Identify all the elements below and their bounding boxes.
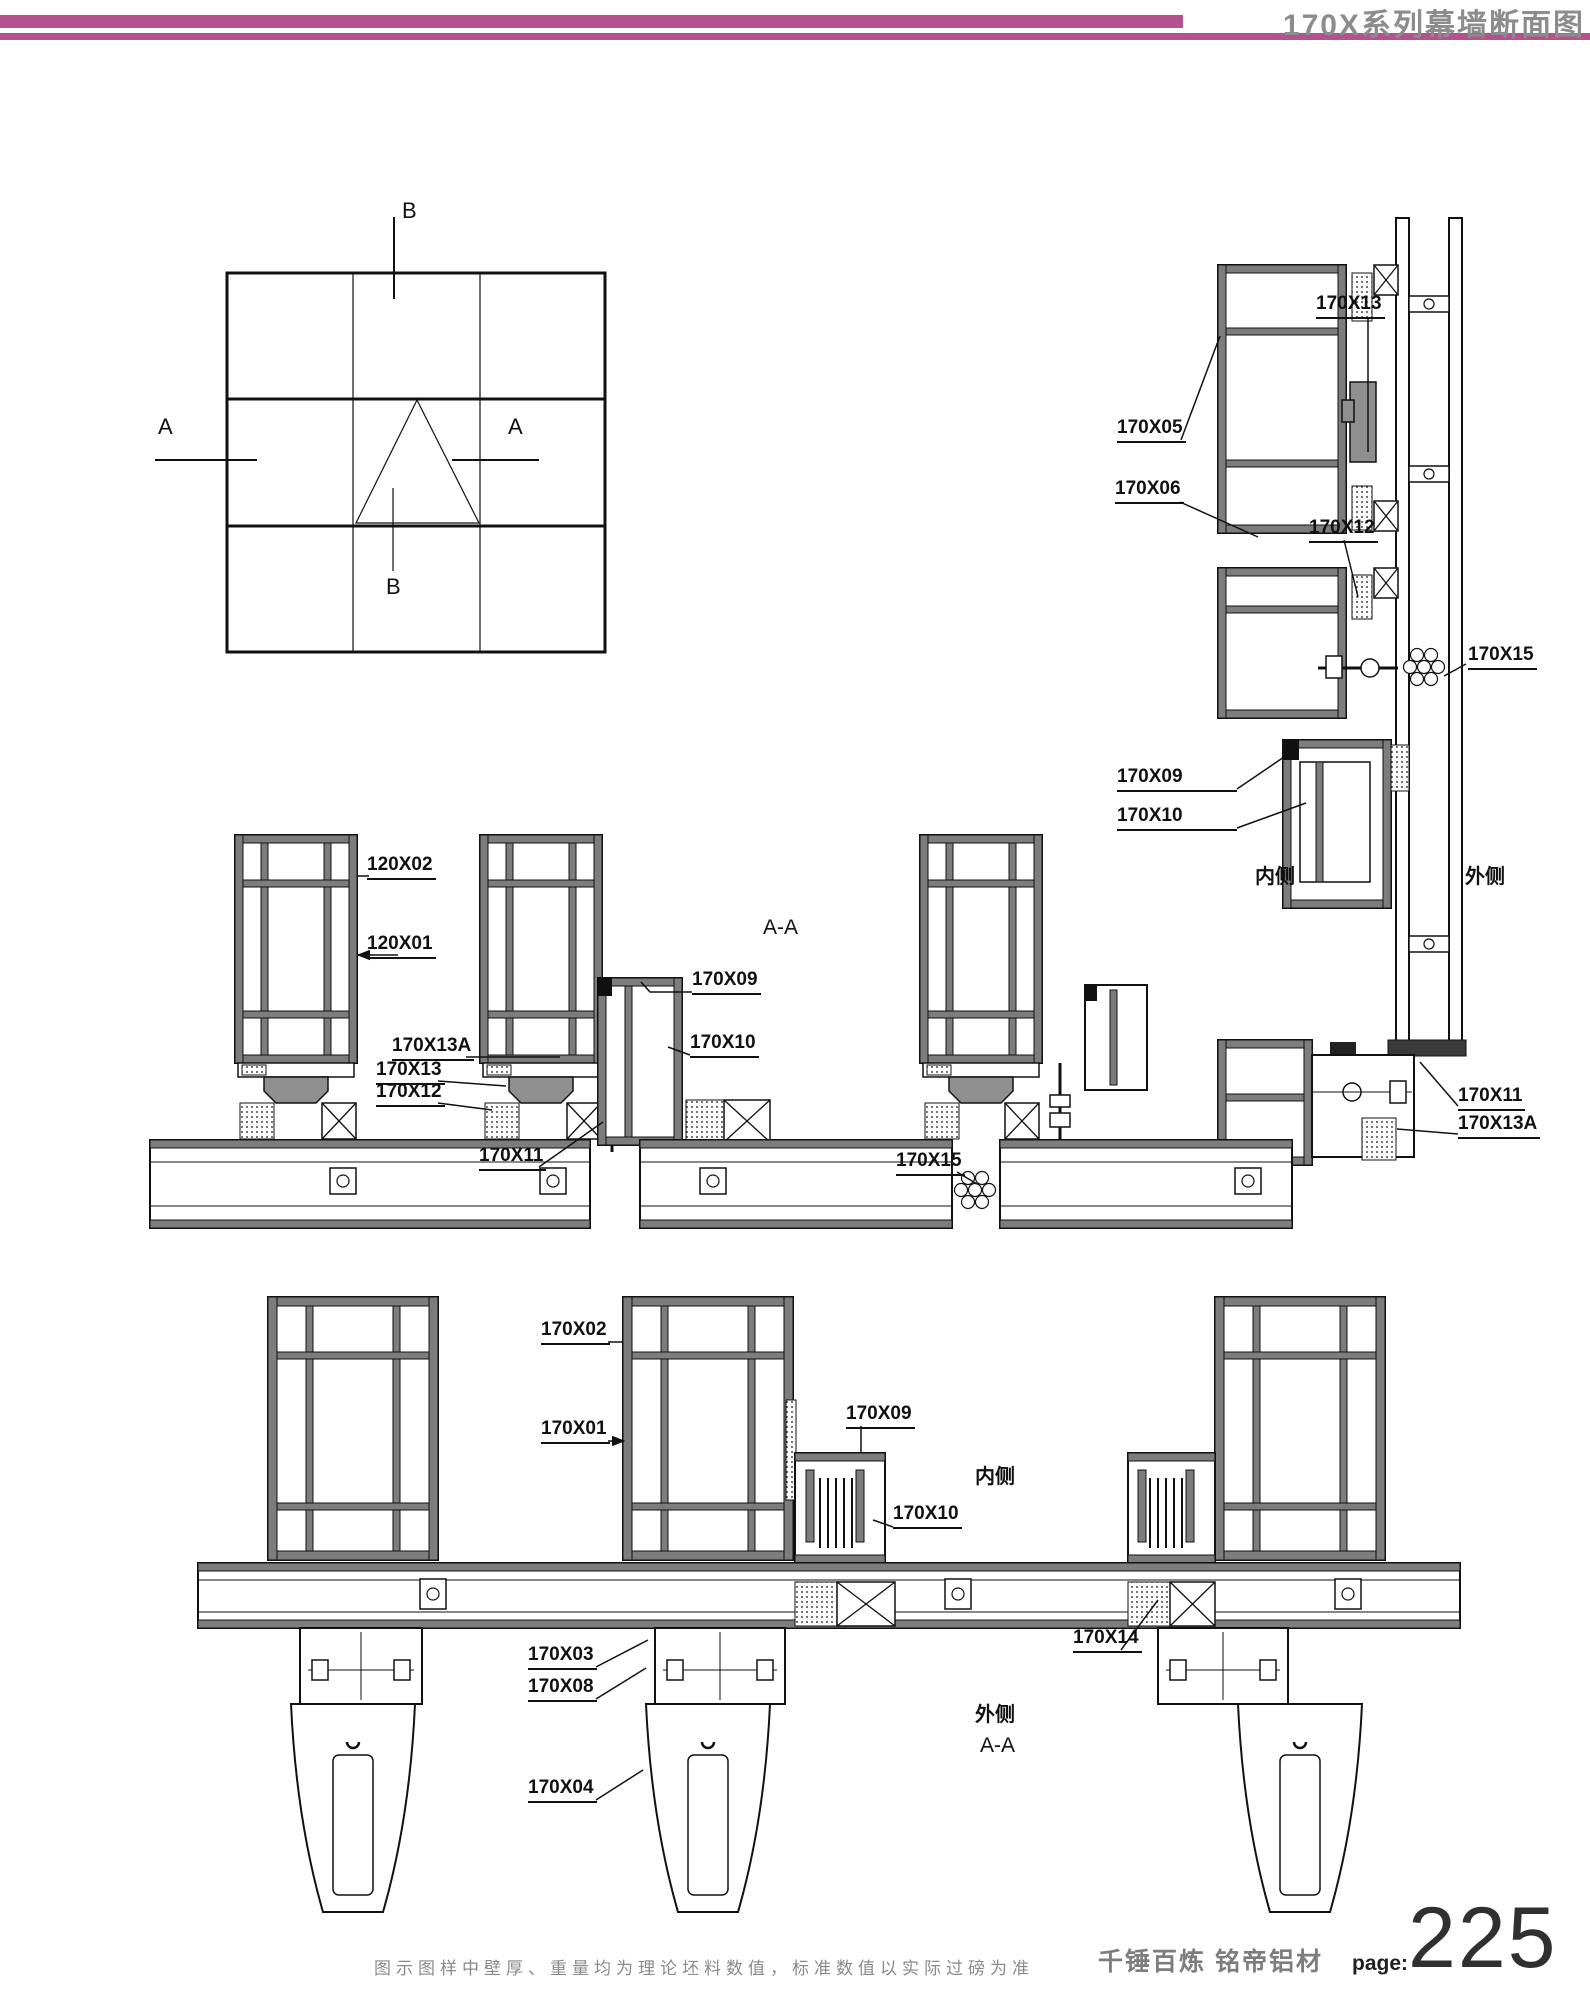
grid-schematic [155,217,605,652]
fin-profile [646,1704,770,1912]
section-marker-a-left: A [158,414,173,440]
part-label-170x04: 170X04 [528,1778,597,1803]
section-a-bottom [198,1297,1460,1912]
fin-profile [291,1704,415,1912]
opening-triangle-marker [356,400,479,523]
catalog-page: 170X系列幕墙断面图 [0,0,1590,2000]
section-marker-b-bottom: B [386,574,401,600]
section-title-aa: A-A [980,1734,1015,1758]
part-label-170x06: 170X06 [1115,479,1184,504]
part-label-170x09: 170X09 [846,1404,915,1429]
part-label-170x13a: 170X13A [392,1036,474,1061]
part-label-170x01: 170X01 [541,1419,610,1444]
sealant-rod [955,1172,996,1209]
section-detail-b [1218,218,1466,1165]
part-label-170x13a: 170X13A [1458,1114,1540,1139]
inside-label: 内侧 [975,1460,1015,1489]
part-label-120x01: 120X01 [367,934,436,959]
part-label-170x12: 170X12 [1309,518,1378,543]
part-label-170x13: 170X13 [1316,294,1385,319]
part-label-170x09: 170X09 [1117,767,1237,792]
part-label-170x12: 170X12 [376,1082,445,1107]
part-label-120x02: 120X02 [367,855,436,880]
part-label-170x05: 170X05 [1117,418,1186,443]
part-label-170x10: 170X10 [893,1504,962,1529]
part-label-170x03: 170X03 [528,1645,597,1670]
part-label-170x10: 170X10 [1117,806,1237,831]
fin-profile [1238,1704,1362,1912]
section-marker-a-right: A [508,414,523,440]
part-label-170x14: 170X14 [1073,1628,1142,1653]
section-marker-b-top: B [402,198,417,224]
part-label-170x09: 170X09 [692,970,761,995]
footer-disclaimer: 图示图样中壁厚、重量均为理论坯料数值，标准数值以实际过磅为准 [374,1954,1034,1979]
section-title-aa: A-A [763,916,798,940]
inside-label: 内侧 [1255,860,1295,889]
outside-label: 外侧 [1465,860,1505,889]
part-label-170x15: 170X15 [1468,645,1537,670]
part-label-170x15: 170X15 [896,1151,965,1176]
footer-brand: 千锤百炼 铭帝铝材 [1098,1942,1323,1978]
page-label: page: [1352,1952,1408,1976]
part-label-170x02: 170X02 [541,1320,610,1345]
part-label-170x08: 170X08 [528,1677,597,1702]
part-label-170x11: 170X11 [1458,1086,1525,1111]
part-label-170x10: 170X10 [690,1033,759,1058]
page-number: 225 [1408,1898,1558,1980]
part-label-170x11: 170X11 [479,1146,546,1171]
outside-label: 外侧 [975,1698,1015,1727]
